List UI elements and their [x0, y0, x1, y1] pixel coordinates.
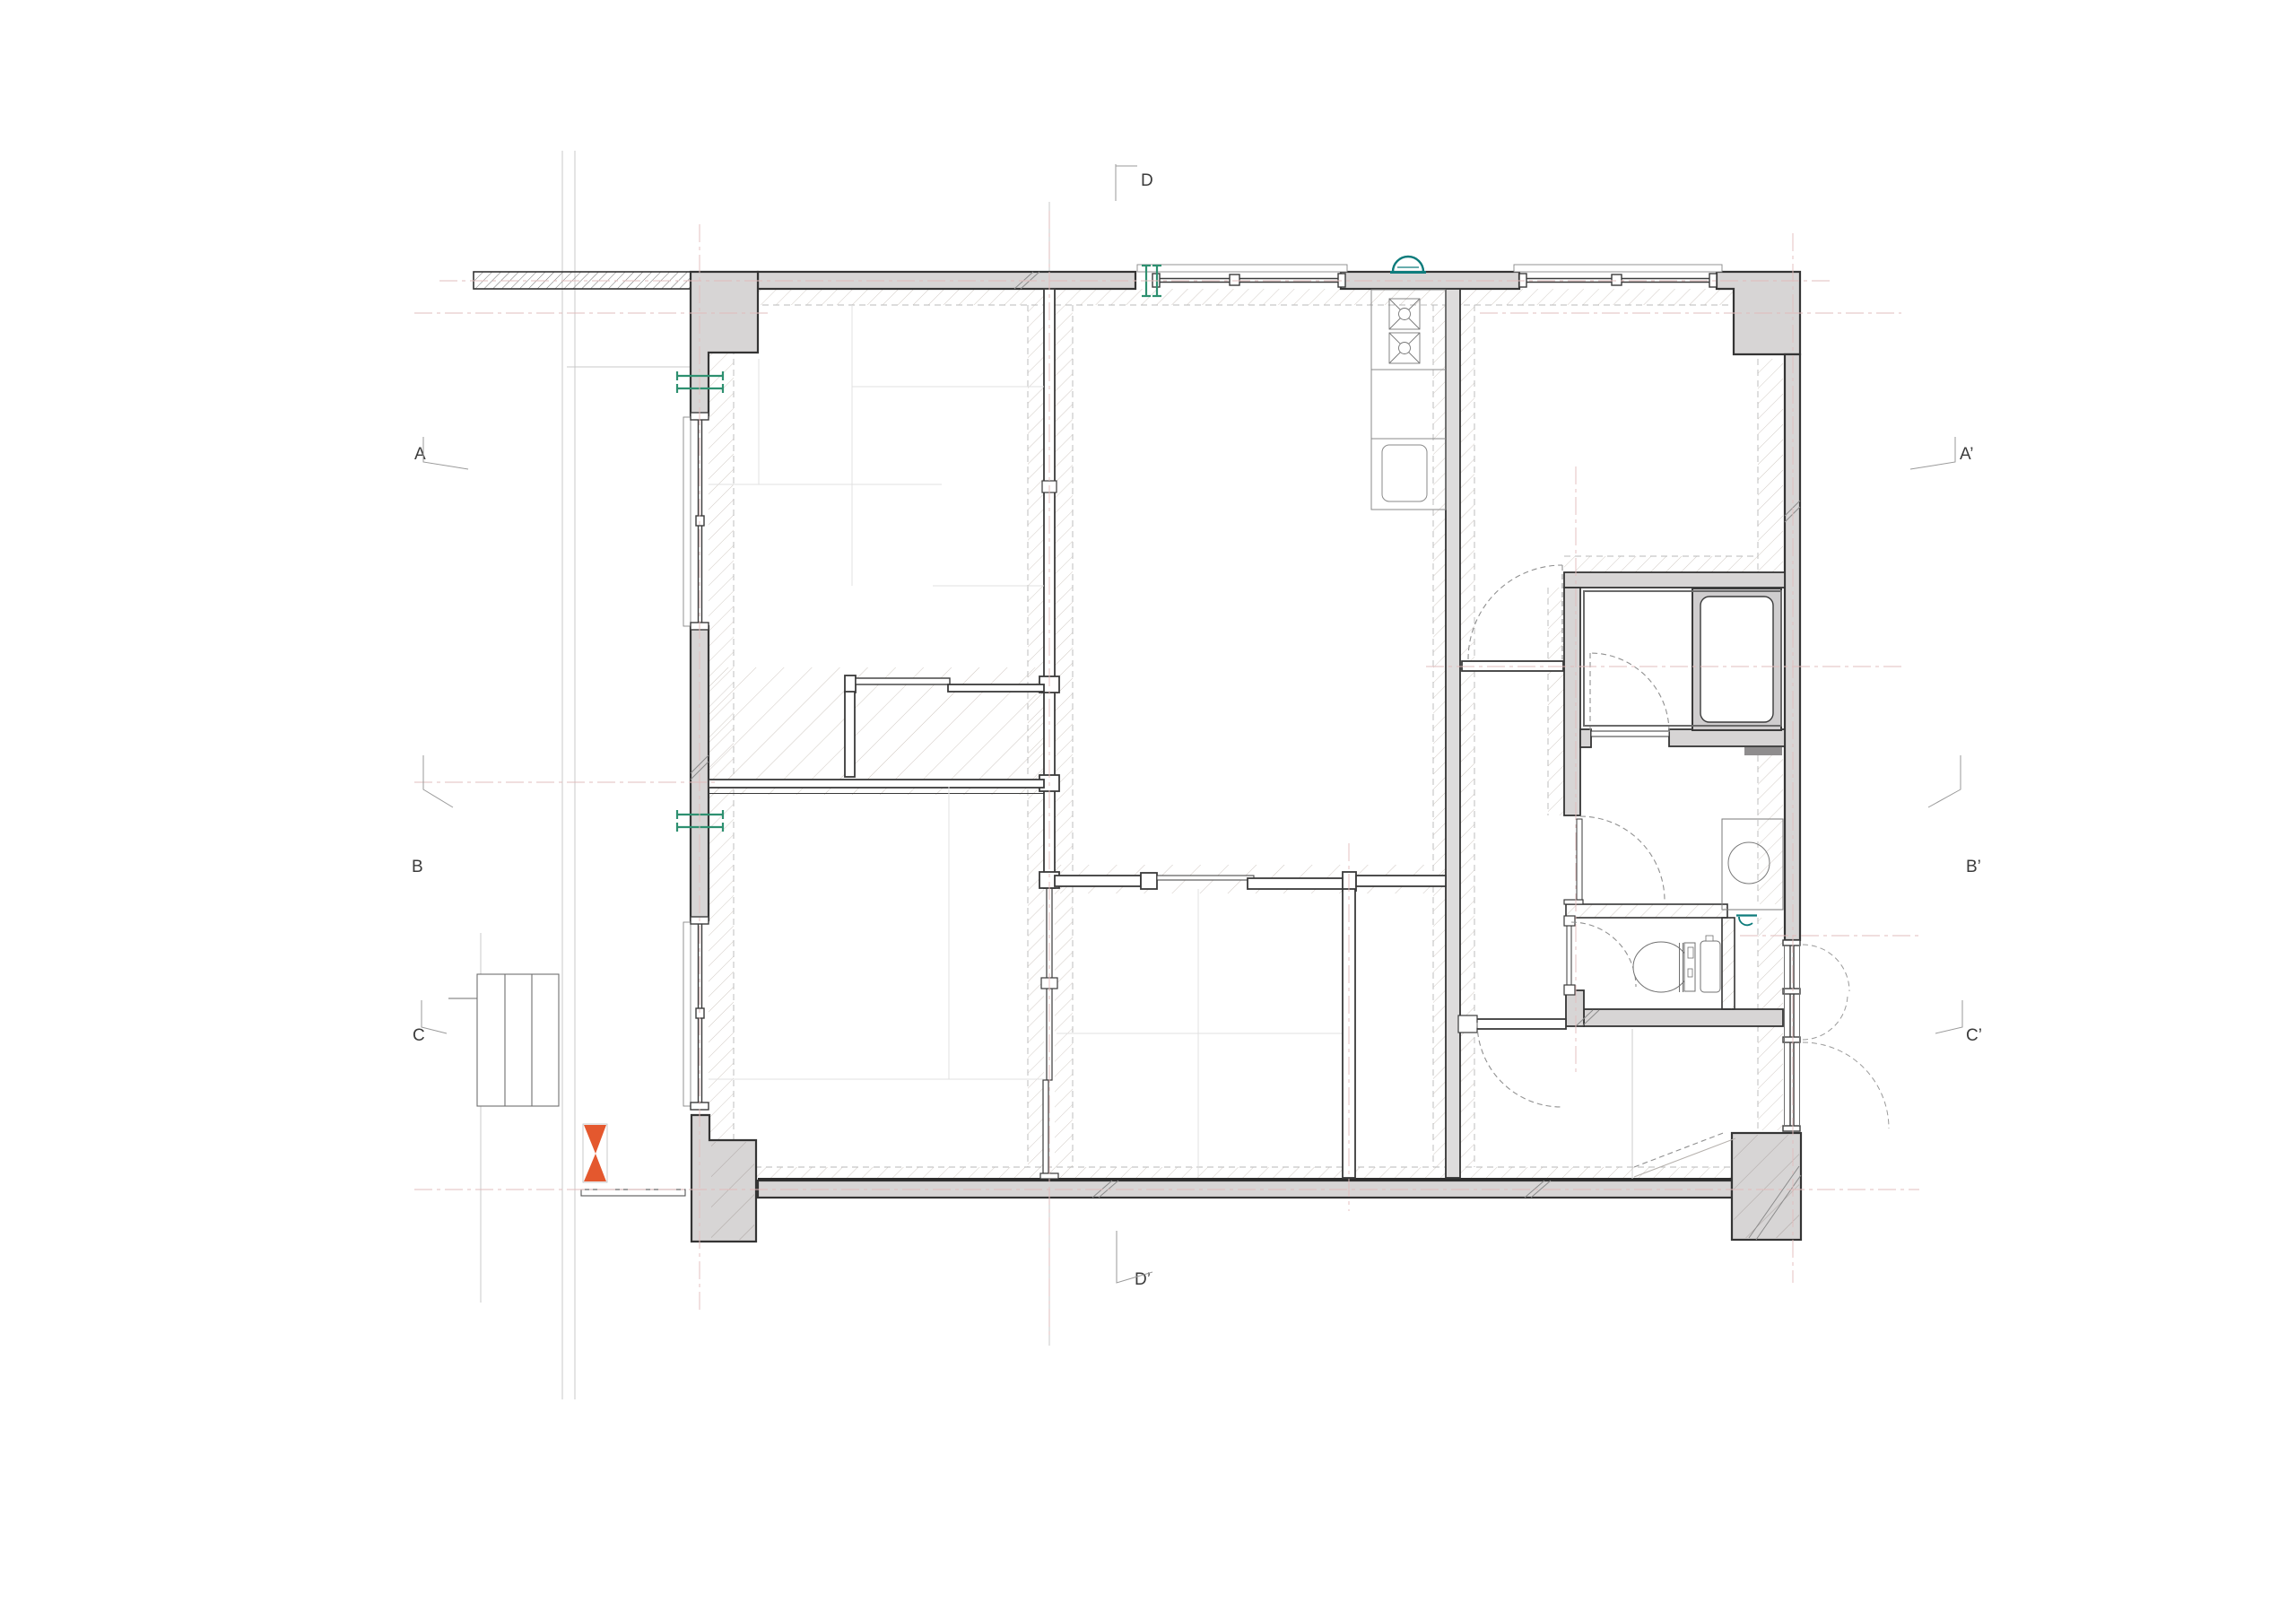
svg-text:B: B: [412, 858, 423, 876]
svg-text:C’: C’: [1966, 1026, 1982, 1045]
svg-text:A: A: [414, 445, 426, 464]
svg-text:C: C: [413, 1026, 425, 1045]
svg-text:B’: B’: [1966, 858, 1981, 876]
svg-text:D: D: [1141, 171, 1153, 190]
svg-text:A’: A’: [1960, 445, 1973, 464]
